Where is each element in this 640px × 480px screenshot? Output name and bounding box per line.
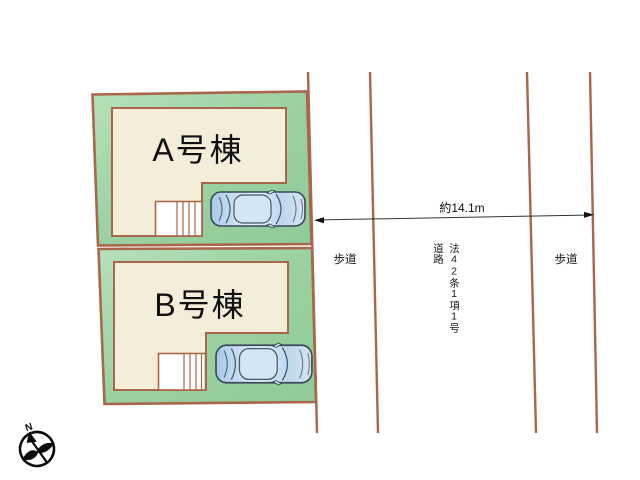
site-plan-drawing: 約14.1m A号棟 B号棟 歩道: [0, 0, 640, 480]
car-a-icon: [211, 190, 305, 228]
compass-n-label: N: [24, 422, 34, 435]
road-name-label: 法42条1項1号道路: [444, 243, 462, 343]
site-plan: 約14.1m A号棟 B号棟 歩道: [0, 0, 640, 480]
road-edge-line-3: [527, 72, 536, 433]
stairs-a: [156, 202, 203, 237]
road-edge-line-4: [590, 72, 597, 433]
sidewalk-label-right: 歩道: [555, 252, 578, 266]
stairs-b: [159, 354, 206, 391]
road-edge-line-2: [370, 72, 378, 433]
sidewalk-label-left: 歩道: [334, 252, 357, 266]
building-b-label: B号棟: [154, 287, 245, 323]
dimension-label: 約14.1m: [439, 200, 484, 215]
building-a-label: A号棟: [152, 132, 243, 168]
north-arrow-icon: N: [12, 417, 59, 471]
car-b-icon: [216, 343, 312, 385]
